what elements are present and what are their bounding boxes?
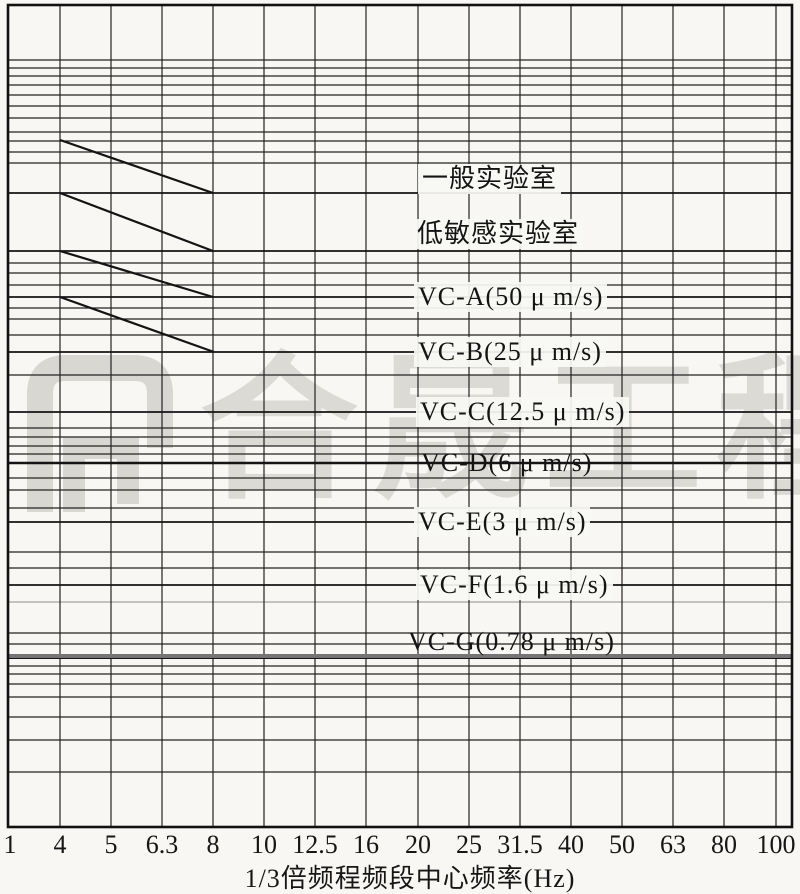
x-tick-label: 12.5	[292, 830, 338, 860]
x-tick-label: 1	[4, 830, 17, 860]
x-tick-label: 40	[558, 830, 584, 860]
x-tick-label: 50	[609, 830, 635, 860]
x-tick-label: 8	[207, 830, 220, 860]
curve-label-vc-e: VC-E(3 μ m/s)	[414, 507, 590, 537]
curve-label-low-sensitivity-lab: 低敏感实验室	[413, 219, 583, 249]
curve-label-vc-g: VC-G(0.78 μ m/s)	[404, 627, 619, 657]
x-tick-label: 4	[54, 830, 67, 860]
curve-label-vc-d: VC-D(6 μ m/s)	[417, 448, 596, 478]
x-tick-label: 6.3	[146, 830, 179, 860]
x-axis-title: 1/3倍频程频段中心频率(Hz)	[245, 858, 576, 894]
x-tick-label: 31.5	[497, 830, 543, 860]
vc-vibration-criteria-chart: 合晟工程 一般实验室 低敏感实验室 VC-A(50 μ m/s) VC-B(25…	[0, 0, 800, 894]
x-tick-label: 10	[251, 830, 277, 860]
x-tick-label: 20	[405, 830, 431, 860]
x-tick-label: 80	[711, 830, 737, 860]
curve-label-vc-a: VC-A(50 μ m/s)	[414, 282, 607, 312]
x-tick-label: 100	[757, 830, 796, 860]
curve-label-vc-b: VC-B(25 μ m/s)	[414, 337, 606, 367]
curve-label-vc-f: VC-F(1.6 μ m/s)	[416, 570, 613, 600]
x-tick-label: 63	[660, 830, 686, 860]
x-tick-label: 25	[456, 830, 482, 860]
x-tick-label: 16	[353, 830, 379, 860]
curve-label-general-lab: 一般实验室	[418, 164, 561, 194]
curve-label-vc-c: VC-C(12.5 μ m/s)	[416, 397, 629, 427]
x-tick-label: 5	[105, 830, 118, 860]
chart-grid	[0, 0, 800, 894]
